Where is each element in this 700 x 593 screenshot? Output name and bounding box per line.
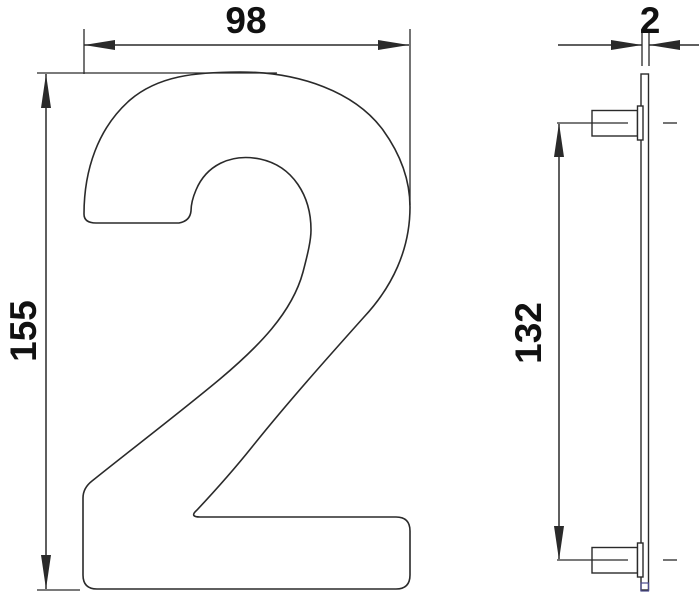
thickness-dimension: 2 [558,0,699,66]
side-view: 2 132 [508,0,699,591]
width-dimension-label: 98 [225,0,266,41]
arrow-down-icon [41,555,51,589]
arrow-inward-left-icon [611,40,642,50]
plate-profile [641,74,649,590]
arrow-up-icon [41,74,51,108]
height-dimension-label: 155 [3,300,44,362]
arrow-left-icon [84,40,115,50]
dimension-drawing: 98 155 [0,0,700,593]
drawing-canvas: 98 155 [0,0,700,593]
stud-flange-top [638,106,644,140]
arrow-inward-right-icon [649,40,680,50]
stud-flange-bottom [638,543,644,577]
arrow-up-icon [554,123,564,157]
stud-centers-dimension-label: 132 [508,302,549,364]
arrow-down-icon [554,526,564,560]
numeral-2-outline [83,72,410,589]
front-view: 98 155 [3,0,410,590]
thickness-dimension-label: 2 [640,0,661,41]
stud-centers-dimension: 132 [508,123,628,560]
arrow-right-icon [378,40,409,50]
